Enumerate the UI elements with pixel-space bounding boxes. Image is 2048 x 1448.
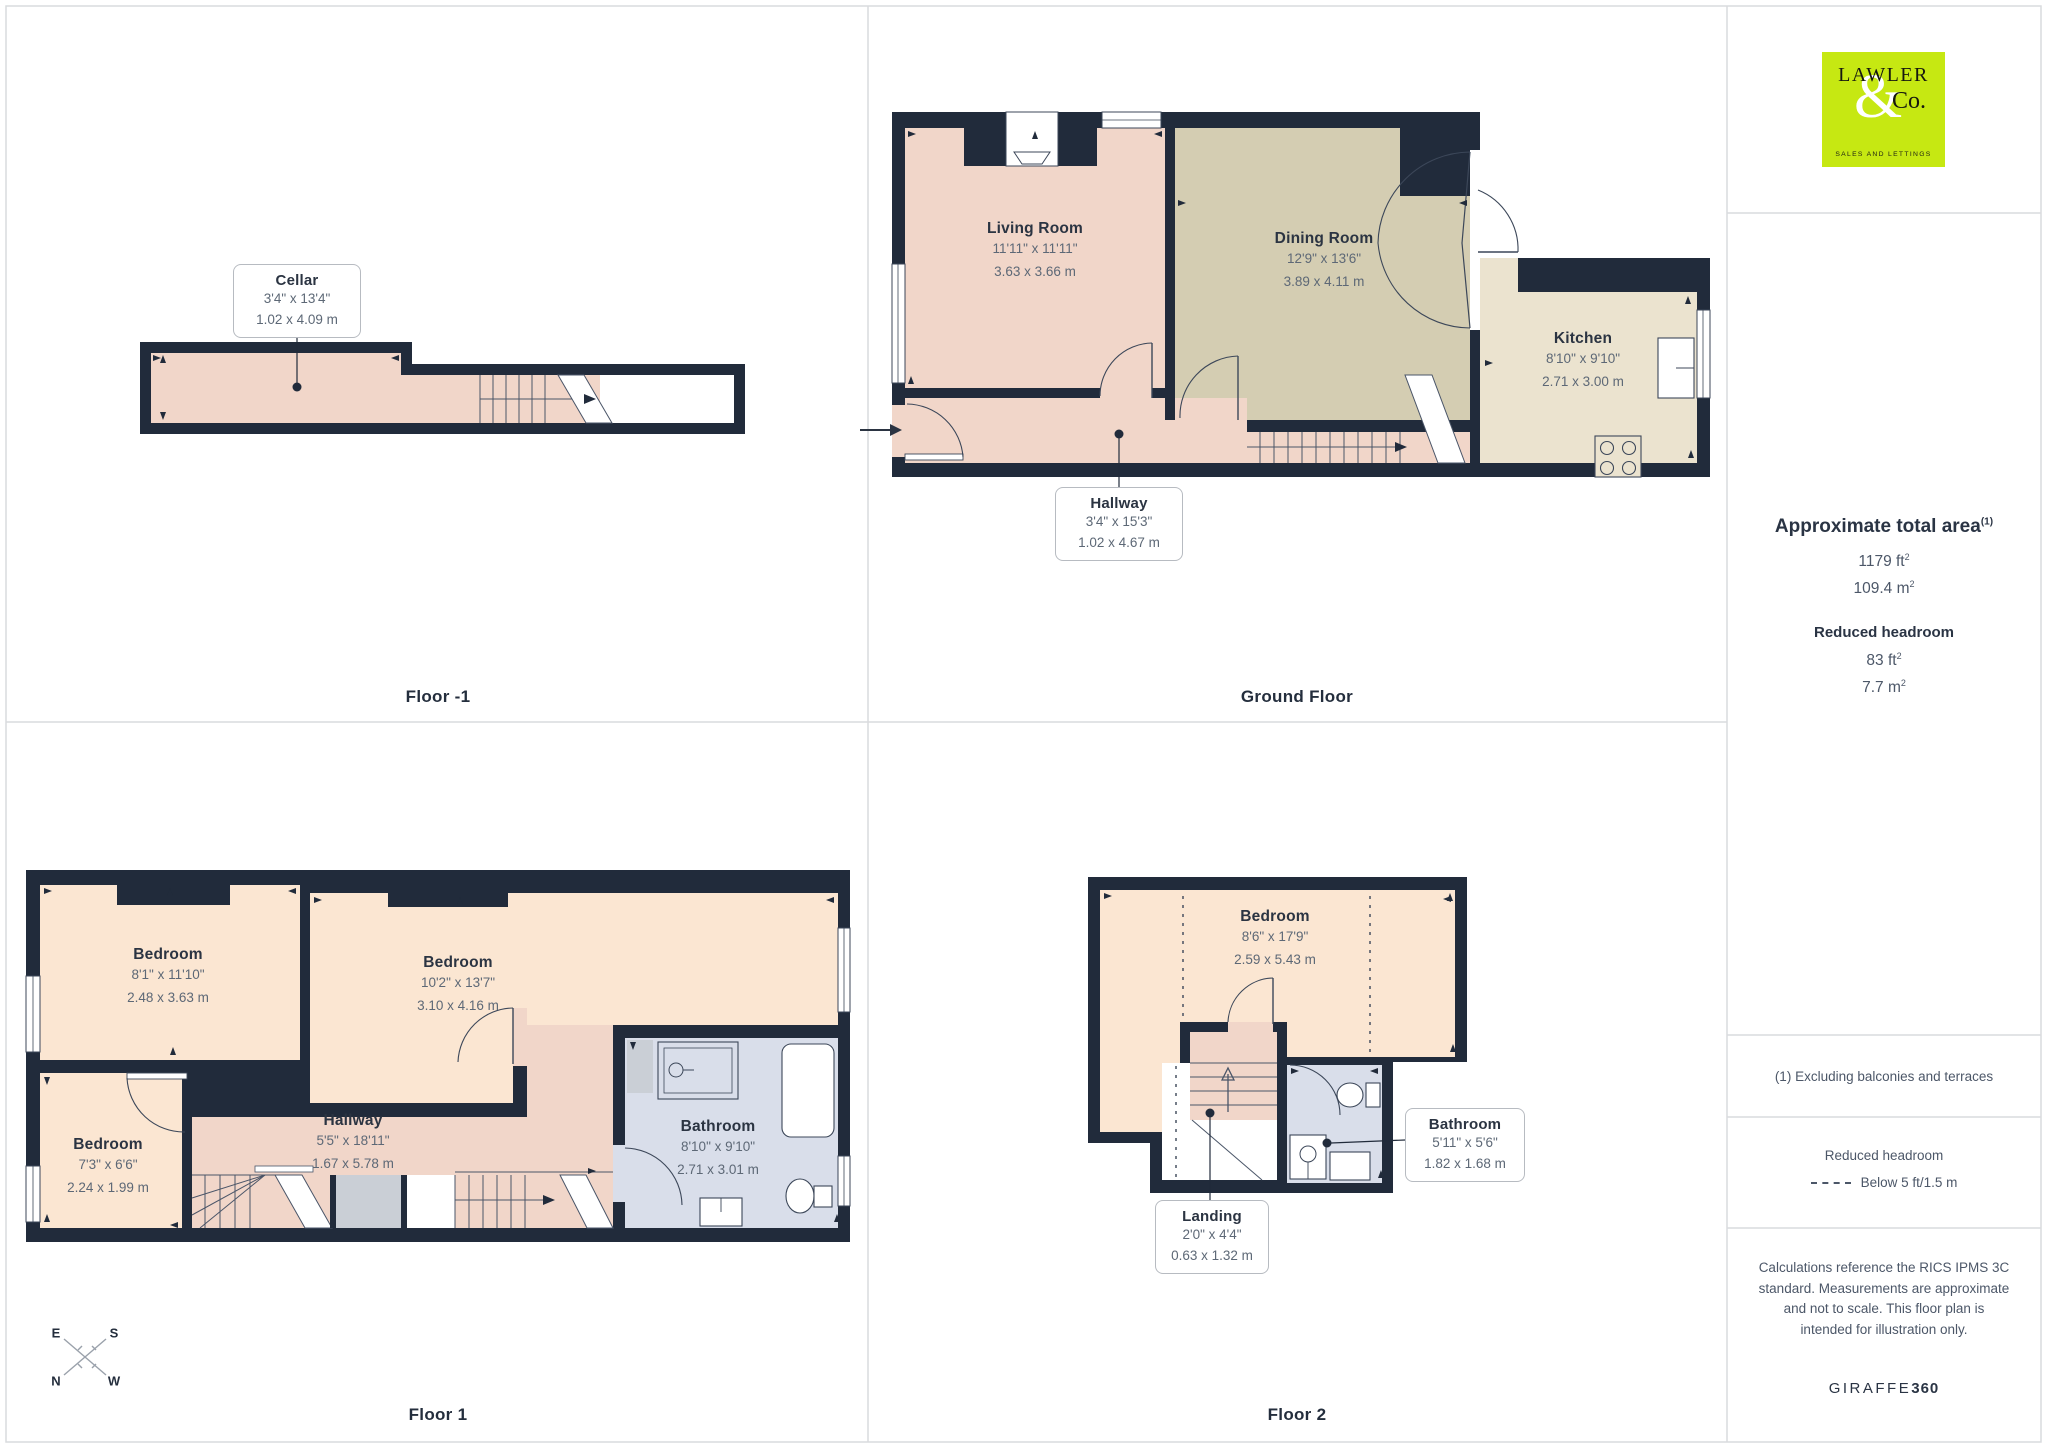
logo-name: LAWLER: [1822, 64, 1945, 87]
room-dims: 3'4" x 13'4" 1.02 x 4.09 m: [242, 289, 352, 331]
compass-w: W: [108, 1374, 120, 1389]
total-area-section: Approximate total area(1) 1179 ft2 109.4…: [1737, 516, 2031, 698]
compass-s: S: [110, 1326, 119, 1341]
legend-section: Reduced headroom Below 5 ft/1.5 m: [1737, 1148, 2031, 1190]
room-callout-hallway-ground: Hallway 3'4" x 15'3"1.02 x 4.67 m: [1055, 487, 1183, 561]
ground-floor-plan: [860, 112, 1710, 487]
total-area-imperial: 1179 ft2: [1737, 552, 2031, 571]
logo-tagline: SALES AND LETTINGS: [1822, 151, 1945, 158]
logo-co: Co.: [1892, 88, 1926, 115]
total-area-metric: 109.4 m2: [1737, 579, 2031, 598]
compass-icon: [64, 1339, 106, 1375]
giraffe360-brand: GIRAFFE360: [1737, 1380, 2031, 1397]
room-callout-landing: Landing 2'0" x 4'4"0.63 x 1.32 m: [1155, 1200, 1269, 1274]
room-callout-cellar: Cellar 3'4" x 13'4" 1.02 x 4.09 m: [233, 264, 361, 338]
legend-row: Below 5 ft/1.5 m: [1737, 1175, 2031, 1190]
room-callout-bathroom-f2: Bathroom 5'11" x 5'6"1.82 x 1.68 m: [1405, 1108, 1525, 1182]
floorplan-drawing: [0, 0, 2048, 1448]
floor-label-2: Floor 2: [1268, 1405, 1327, 1425]
disclaimer-text: Calculations reference the RICS IPMS 3C …: [1758, 1258, 2010, 1340]
legend-heading: Reduced headroom: [1737, 1148, 2031, 1163]
reduced-headroom-imperial: 83 ft2: [1737, 651, 2031, 670]
floor-label-minus1: Floor -1: [406, 687, 471, 707]
compass-e: E: [52, 1326, 61, 1341]
room-name: Cellar: [242, 272, 352, 289]
legend-label: Below 5 ft/1.5 m: [1861, 1175, 1958, 1190]
reduced-headroom-metric: 7.7 m2: [1737, 678, 2031, 697]
reduced-headroom-heading: Reduced headroom: [1737, 624, 2031, 641]
cellar-plan: [140, 338, 745, 434]
compass-n: N: [51, 1374, 60, 1389]
total-area-heading: Approximate total area(1): [1737, 516, 2031, 538]
floor-label-1: Floor 1: [409, 1405, 468, 1425]
floor-label-ground: Ground Floor: [1241, 687, 1353, 707]
lawler-logo: & LAWLER Co. SALES AND LETTINGS: [1822, 52, 1945, 167]
floor-1-plan: [26, 870, 850, 1242]
footnote-excluding: (1) Excluding balconies and terraces: [1737, 1069, 2031, 1084]
dashed-line-icon: [1811, 1182, 1851, 1184]
floorplan-sheet: Floor -1 Ground Floor Floor 1 Floor 2 Ce…: [0, 0, 2048, 1448]
